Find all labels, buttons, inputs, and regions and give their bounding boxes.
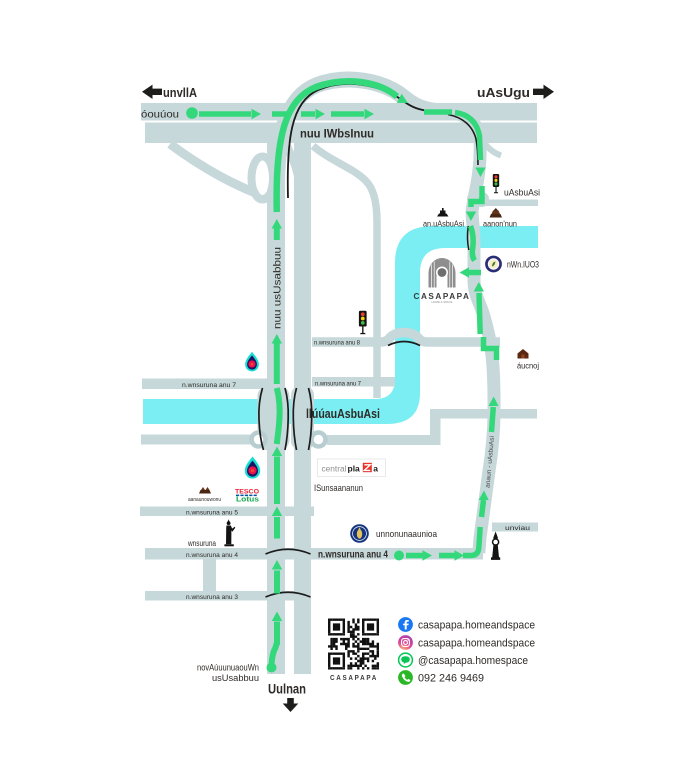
svg-text:casapapa.homeandspace: casapapa.homeandspace	[418, 638, 535, 650]
svg-text:unnonunaaunioa: unnonunaaunioa	[376, 529, 438, 540]
svg-text:nuu usUsabbuu: nuu usUsabbuu	[272, 247, 284, 329]
svg-text:unvllA: unvllA	[163, 85, 198, 100]
svg-text:ISunsaananun: ISunsaananun	[314, 483, 363, 494]
svg-text:Lotus: Lotus	[236, 495, 259, 504]
svg-text:nWn.IUO3: nWn.IUO3	[507, 260, 539, 270]
svg-text:unviau: unviau	[505, 525, 530, 532]
svg-text:pla: pla	[348, 464, 361, 474]
svg-text:n.wnsuruna anu 5: n.wnsuruna anu 5	[186, 510, 238, 517]
svg-text:n.wnsuruna anu 4: n.wnsuruna anu 4	[186, 552, 238, 559]
svg-text:an.uAsbuAsi: an.uAsbuAsi	[423, 220, 464, 229]
svg-text:llúúauAsbuAsi: llúúauAsbuAsi	[306, 407, 380, 421]
svg-text:HOME & SPACE: HOME & SPACE	[432, 300, 453, 304]
svg-text:n.wnsuruna anu 7: n.wnsuruna anu 7	[182, 382, 236, 389]
svg-text:092 246 9469: 092 246 9469	[418, 673, 484, 685]
svg-text:n.wnsuruna anu 3: n.wnsuruna anu 3	[186, 594, 238, 601]
svg-text:áucnoj: áucnoj	[517, 362, 539, 371]
svg-text:uAsUgu: uAsUgu	[477, 85, 530, 100]
svg-text:aanon'nun: aanon'nun	[483, 220, 517, 229]
svg-text:n.wnsuruna anu 7: n.wnsuruna anu 7	[315, 381, 361, 388]
svg-text:uAsbuAsi: uAsbuAsi	[504, 188, 540, 199]
svg-text:central: central	[322, 465, 347, 474]
svg-text:aanaunouwonu: aanaunouwonu	[188, 497, 221, 503]
svg-text:n.wnsuruna anu 8: n.wnsuruna anu 8	[314, 340, 360, 347]
svg-text:wnsuruna: wnsuruna	[187, 539, 216, 548]
svg-text:nuu IWbsInuu: nuu IWbsInuu	[300, 129, 374, 141]
svg-text:n.wnsuruna anu 4: n.wnsuruna anu 4	[318, 550, 388, 561]
svg-text:CASAPAPA: CASAPAPA	[330, 673, 378, 682]
svg-text:usUsabbuu: usUsabbuu	[212, 673, 259, 683]
svg-text:novAúuunuaouWn: novAúuunuaouWn	[197, 663, 259, 673]
svg-text:a: a	[373, 464, 378, 474]
svg-text:Uulnan: Uulnan	[268, 682, 306, 697]
svg-text:casapapa.homeandspace: casapapa.homeandspace	[418, 620, 535, 632]
svg-text:@casapapa.homespace: @casapapa.homespace	[418, 655, 528, 667]
svg-text:óouúou: óouúou	[141, 110, 179, 121]
